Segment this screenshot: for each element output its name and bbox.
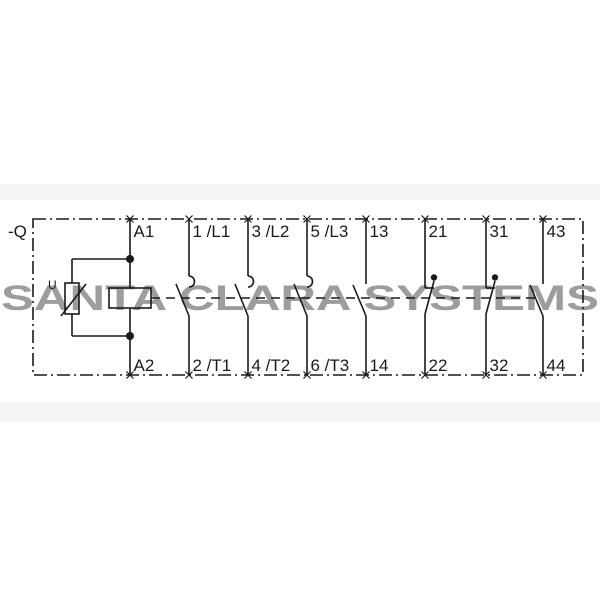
device-designation-label: -Q (8, 222, 27, 241)
terminal-label-14: 14 (370, 356, 389, 375)
nc-contact-dot (431, 274, 437, 280)
bottom-gray-band (0, 402, 600, 422)
terminal-label-6t3: 6 /T3 (311, 356, 350, 375)
top-gray-band (0, 184, 600, 200)
contactor-wiring-diagram: SANTA CLARA SYSTEMS -Q A1 A2 U 1 /L1 2 /… (0, 0, 600, 600)
terminal-label-2t1: 2 /T1 (193, 356, 232, 375)
terminal-label-21: 21 (429, 222, 448, 241)
terminal-label-44: 44 (547, 356, 566, 375)
terminal-label-3l2: 3 /L2 (252, 222, 290, 241)
terminal-label-a1: A1 (134, 222, 155, 241)
terminal-label-31: 31 (490, 222, 509, 241)
terminal-label-a2: A2 (134, 356, 155, 375)
terminal-label-22: 22 (429, 356, 448, 375)
terminal-label-43: 43 (547, 222, 566, 241)
varistor-label: U (48, 278, 57, 292)
nc-contact-dot (492, 274, 498, 280)
terminal-label-32: 32 (490, 356, 509, 375)
terminal-label-1l1: 1 /L1 (193, 222, 231, 241)
schematic-canvas: SANTA CLARA SYSTEMS -Q A1 A2 U 1 /L1 2 /… (0, 0, 600, 600)
terminal-label-5l3: 5 /L3 (311, 222, 349, 241)
terminal-label-13: 13 (370, 222, 389, 241)
terminal-label-4t2: 4 /T2 (252, 356, 291, 375)
